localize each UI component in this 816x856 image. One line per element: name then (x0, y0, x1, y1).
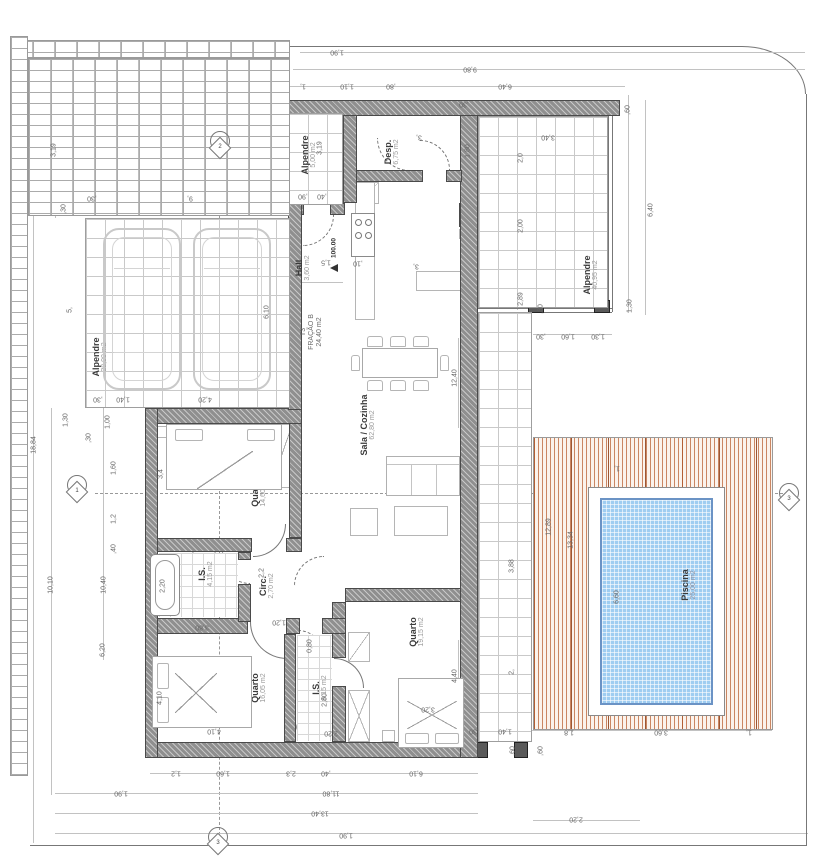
unit-label: T3 FRAÇÃO B 24,40 m2 (300, 314, 324, 350)
room-label-bedroom3: Quarto 19,15 m2 (408, 617, 426, 647)
chair (367, 380, 383, 391)
circ-west-a (238, 552, 251, 560)
dimension-label: 1,60 (561, 333, 575, 340)
dimension-label: 4,10 (157, 691, 164, 705)
hall-open-line (302, 282, 343, 283)
dimension-label: 1,10 (340, 83, 354, 90)
dimension-label: 3,19 (51, 143, 58, 157)
room-label-bedroom2: Quarto 16,05 m2 (250, 673, 268, 703)
dimension-label: 4,40 (452, 669, 459, 683)
brick-strip-top (10, 40, 290, 58)
dimension-label: 1,30 (591, 333, 605, 340)
boundary-bottom (30, 845, 807, 846)
wardrobe (348, 632, 370, 662)
dimension-label: 1,40 (116, 396, 130, 403)
dimension-label: 6,40 (648, 203, 655, 217)
dim-line (288, 86, 625, 87)
dimension-label: 3,19 (317, 141, 324, 155)
dimension-label: ,40 (111, 544, 118, 554)
dimension-label: ,30 (536, 333, 546, 340)
dimension-label: 6,20 (100, 643, 107, 657)
dimension-label: 1,5 (321, 259, 331, 266)
circ-door (294, 556, 324, 586)
porch-edge-r2 (612, 116, 613, 312)
dimension-label: 2,00 (518, 219, 525, 233)
east-walkway (478, 312, 532, 742)
dimension-label: 3, (416, 134, 422, 141)
boundary-top (290, 46, 742, 47)
dimension-label: 9,80 (463, 66, 477, 73)
living-q3-wall (345, 588, 478, 602)
dimension-label: 2,80 (322, 693, 329, 707)
dimension-label: 6,10 (409, 770, 423, 777)
dimension-label: 1,2 (111, 514, 118, 524)
level-marker-icon (330, 264, 338, 272)
mid-wall-c (322, 618, 346, 634)
dimension-label: 3, (413, 263, 419, 270)
dimension-label: 1, (614, 465, 620, 472)
dimension-label: ,30 (459, 101, 469, 108)
room-label-porch-ne: Alpendre 40,95 m2 (582, 255, 600, 294)
hall-door (303, 215, 334, 246)
boundary-corner-arc (742, 46, 806, 94)
dimension-label: 12,40 (452, 369, 459, 387)
chair (440, 355, 449, 371)
dimension-label: 2,20 (160, 579, 167, 593)
dimension-label: 9, (187, 195, 193, 202)
dimension-label: 1, (300, 83, 306, 90)
dimension-label: 13,40 (311, 810, 329, 817)
dimension-label: 2,20 (324, 730, 338, 737)
dimension-label: 2,3 (286, 770, 296, 777)
dimension-label: 4,20 (198, 396, 212, 403)
bedroom2-door (250, 622, 287, 659)
bedroom3-door (334, 658, 364, 688)
dimension-label: 3,80 (195, 624, 209, 631)
dimension-label: 10,40 (101, 576, 108, 594)
car (193, 228, 271, 390)
dimension-label: 1,90 (339, 832, 353, 839)
dimension-label: 1,20 (272, 619, 286, 626)
room-label-living: Sala / Cozinha 62,80 m2 (359, 394, 377, 455)
dim-line (300, 52, 805, 53)
brick-strip-left (10, 36, 28, 776)
porch-edge-b1 (478, 308, 612, 309)
chair (390, 380, 406, 391)
bed1-top-wall (145, 408, 302, 424)
bath1-top-wall-a (145, 538, 252, 552)
dim-line (55, 813, 478, 814)
bath1-top-wall-b (286, 538, 302, 552)
dimension-label: 13,34 (568, 531, 575, 549)
dimension-label: 3,60 (654, 729, 668, 736)
dim-line (645, 100, 646, 315)
dimension-label: 11,80 (323, 790, 340, 797)
room-name: Alpendre (91, 337, 101, 376)
dim-line (533, 820, 640, 821)
pantry-door (420, 140, 450, 170)
dimension-label: 2,0 (518, 153, 525, 163)
dimension-label: 2,2 (259, 568, 266, 578)
chair (367, 336, 383, 347)
dimension-label: 1,90 (330, 49, 344, 56)
pantry-wall-b (446, 170, 462, 182)
dimension-label: 5, (67, 307, 74, 313)
dimension-label: ,30 (469, 728, 479, 735)
car (103, 228, 181, 390)
dimension-label: ,30 (87, 195, 97, 202)
dimension-label: 1,2 (171, 770, 181, 777)
section-marker-top: 2 (207, 131, 233, 161)
dimension-label: 3,4 (158, 469, 165, 479)
dimension-label: 1,00 (105, 415, 112, 429)
tv-bench (394, 506, 448, 536)
dimension-label: 1,30 (63, 413, 70, 427)
bed1-east-wall (289, 408, 302, 538)
dimension-label: ,60 (510, 746, 517, 756)
bed (166, 424, 282, 490)
dimension-label: 1,40 (498, 728, 512, 735)
dimension-label: 1,80 (465, 144, 472, 158)
dimension-label: 1,90 (114, 790, 128, 797)
dimension-label: 6,60 (614, 590, 621, 604)
nightstand (382, 730, 395, 742)
chair (390, 336, 406, 347)
section-marker-left: 1 (64, 475, 90, 505)
dimension-label: 3,88 (509, 559, 516, 573)
armchair (350, 508, 378, 536)
sofa (386, 456, 460, 496)
stove (351, 213, 375, 257)
east-wall (460, 100, 478, 758)
level-label: 100.00 (331, 238, 338, 258)
porch-edge-r1 (608, 116, 609, 312)
dimension-label: 12,89 (546, 518, 553, 536)
dimension-label: 3,40 (541, 134, 555, 141)
dimension-label: ,10 (353, 260, 363, 267)
dimension-label: 18,84 (31, 436, 38, 454)
brick-block (28, 58, 290, 216)
dimension-label: 0,80 (307, 639, 314, 653)
dining-table (362, 348, 438, 378)
dimension-label: 2, (509, 669, 516, 675)
dimension-label: ,30 (538, 304, 545, 314)
dimension-label: ,60 (538, 746, 545, 756)
mid-wall-b (286, 618, 300, 634)
boundary-right (806, 94, 807, 845)
dimension-label: 6,10 (264, 305, 271, 319)
bedroom1-door (253, 524, 286, 557)
dimension-label: ,90 (298, 193, 308, 200)
dimension-label: 6,40 (498, 83, 512, 90)
room-label-hall: Hall 3,60 m2 (294, 255, 312, 280)
dimension-label: 1,30 (627, 299, 634, 313)
room-label-pantry: Desp. 6,75 m2 (383, 139, 401, 164)
section-marker-bottom: 3 (205, 827, 231, 856)
dim-line (628, 95, 629, 313)
dimension-label: ,60 (625, 105, 632, 115)
dim-line (55, 833, 808, 834)
dim-line (103, 408, 104, 660)
dimension-label: 1,60 (111, 461, 118, 475)
floor-plan: Alpendre 38,00 m2 Alpendre 5,00 m2 Hall … (0, 0, 816, 856)
dimension-label: 1,8 (564, 729, 574, 736)
dimension-label: 4,10 (207, 728, 221, 735)
dimension-label: 10,10 (48, 576, 55, 594)
dimension-label: ,30 (93, 396, 103, 403)
dimension-label: 1,60 (216, 770, 230, 777)
dim-line (150, 773, 478, 774)
bath2-west-wall (284, 634, 296, 742)
bed (398, 678, 464, 748)
dimension-label: ,40 (317, 193, 327, 200)
chair (413, 380, 429, 391)
chair (413, 336, 429, 347)
dimension-label: 1, (746, 729, 752, 736)
dim-line (293, 69, 805, 70)
dimension-label: 3,20 (421, 706, 435, 713)
dimension-label: 2,89 (518, 292, 525, 306)
room-label-pool: Piscina 25,00 m2 (680, 569, 698, 601)
dimension-label: ,30 (61, 204, 68, 214)
dim-line (51, 408, 52, 795)
bed (152, 656, 252, 728)
dimension-label: ,80 (386, 83, 396, 90)
section-marker-right: 3 (776, 483, 802, 513)
circ-west-b (238, 584, 251, 622)
dimension-label: 2,20 (569, 816, 583, 823)
wardrobe (348, 690, 370, 742)
dimension-label: ,40 (321, 770, 331, 777)
chair (351, 355, 360, 371)
room-label-bath1: I.S. 4,15 m2 (197, 561, 215, 586)
dimension-label: ,30 (86, 433, 93, 443)
room-label-entry-porch: Alpendre 5,00 m2 (300, 135, 318, 174)
